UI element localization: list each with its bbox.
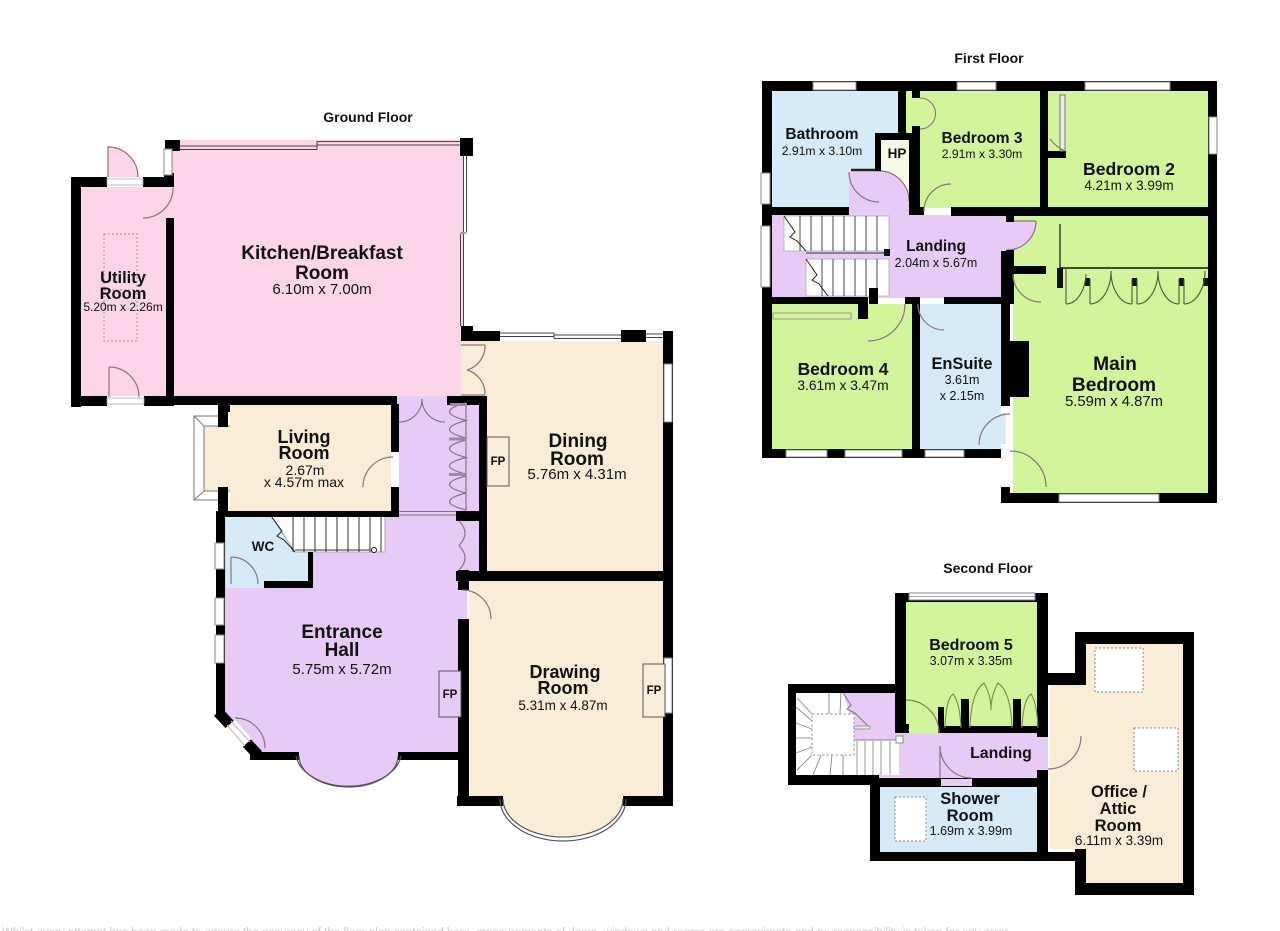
svg-text:Attic: Attic — [1100, 800, 1137, 818]
svg-text:Whilst every attempt has been: Whilst every attempt has been made to en… — [2, 927, 1008, 931]
svg-text:First Floor: First Floor — [954, 50, 1024, 66]
svg-text:2.91m x 3.10m: 2.91m x 3.10m — [782, 144, 863, 158]
svg-text:Office /: Office / — [1091, 783, 1147, 801]
svg-text:5.75m x 5.72m: 5.75m x 5.72m — [292, 661, 391, 678]
svg-text:FP: FP — [491, 456, 506, 468]
svg-text:Bedroom 5: Bedroom 5 — [929, 637, 1013, 654]
svg-text:Shower: Shower — [940, 790, 1000, 808]
svg-text:5.76m x 4.31m: 5.76m x 4.31m — [527, 466, 626, 483]
svg-text:Room: Room — [538, 678, 589, 698]
svg-text:Room: Room — [947, 807, 994, 825]
svg-text:EnSuite: EnSuite — [931, 355, 992, 373]
svg-text:3.61m x 3.47m: 3.61m x 3.47m — [797, 378, 888, 393]
svg-text:FP: FP — [647, 685, 662, 697]
svg-text:6.10m x 7.00m: 6.10m x 7.00m — [272, 281, 371, 298]
svg-text:Bedroom 3: Bedroom 3 — [942, 130, 1023, 147]
svg-text:4.21m x 3.99m: 4.21m x 3.99m — [1084, 178, 1173, 193]
svg-text:Bedroom 2: Bedroom 2 — [1083, 159, 1175, 179]
svg-text:1.69m x 3.99m: 1.69m x 3.99m — [930, 824, 1013, 838]
svg-text:FP: FP — [443, 689, 458, 701]
svg-text:WC: WC — [252, 539, 275, 554]
svg-text:2.91m x 3.30m: 2.91m x 3.30m — [942, 147, 1023, 161]
svg-text:Landing: Landing — [906, 238, 966, 255]
svg-text:5.31m x 4.87m: 5.31m x 4.87m — [518, 698, 607, 713]
svg-text:Kitchen/Breakfast: Kitchen/Breakfast — [241, 243, 403, 264]
svg-text:3.61m: 3.61m — [945, 373, 980, 387]
svg-text:Room: Room — [279, 443, 330, 463]
svg-text:Ground Floor: Ground Floor — [323, 109, 413, 125]
svg-text:Second Floor: Second Floor — [943, 560, 1033, 576]
svg-text:Landing: Landing — [970, 745, 1032, 762]
svg-text:2.04m x 5.67m: 2.04m x 5.67m — [895, 256, 978, 270]
svg-text:5.20m x 2.26m: 5.20m x 2.26m — [83, 300, 162, 314]
svg-text:HP: HP — [888, 146, 907, 161]
svg-text:Main: Main — [1093, 354, 1137, 375]
svg-text:Bedroom: Bedroom — [1072, 375, 1156, 396]
svg-text:6.11m x 3.39m: 6.11m x 3.39m — [1075, 833, 1163, 848]
svg-text:Hall: Hall — [325, 640, 360, 661]
svg-text:3.07m x 3.35m: 3.07m x 3.35m — [930, 654, 1013, 668]
svg-text:x 4.57m max: x 4.57m max — [264, 474, 344, 490]
svg-text:Bedroom 4: Bedroom 4 — [798, 359, 889, 379]
svg-text:x 2.15m: x 2.15m — [940, 389, 984, 403]
svg-text:5.59m x 4.87m: 5.59m x 4.87m — [1065, 394, 1163, 410]
svg-text:Bathroom: Bathroom — [785, 126, 858, 143]
